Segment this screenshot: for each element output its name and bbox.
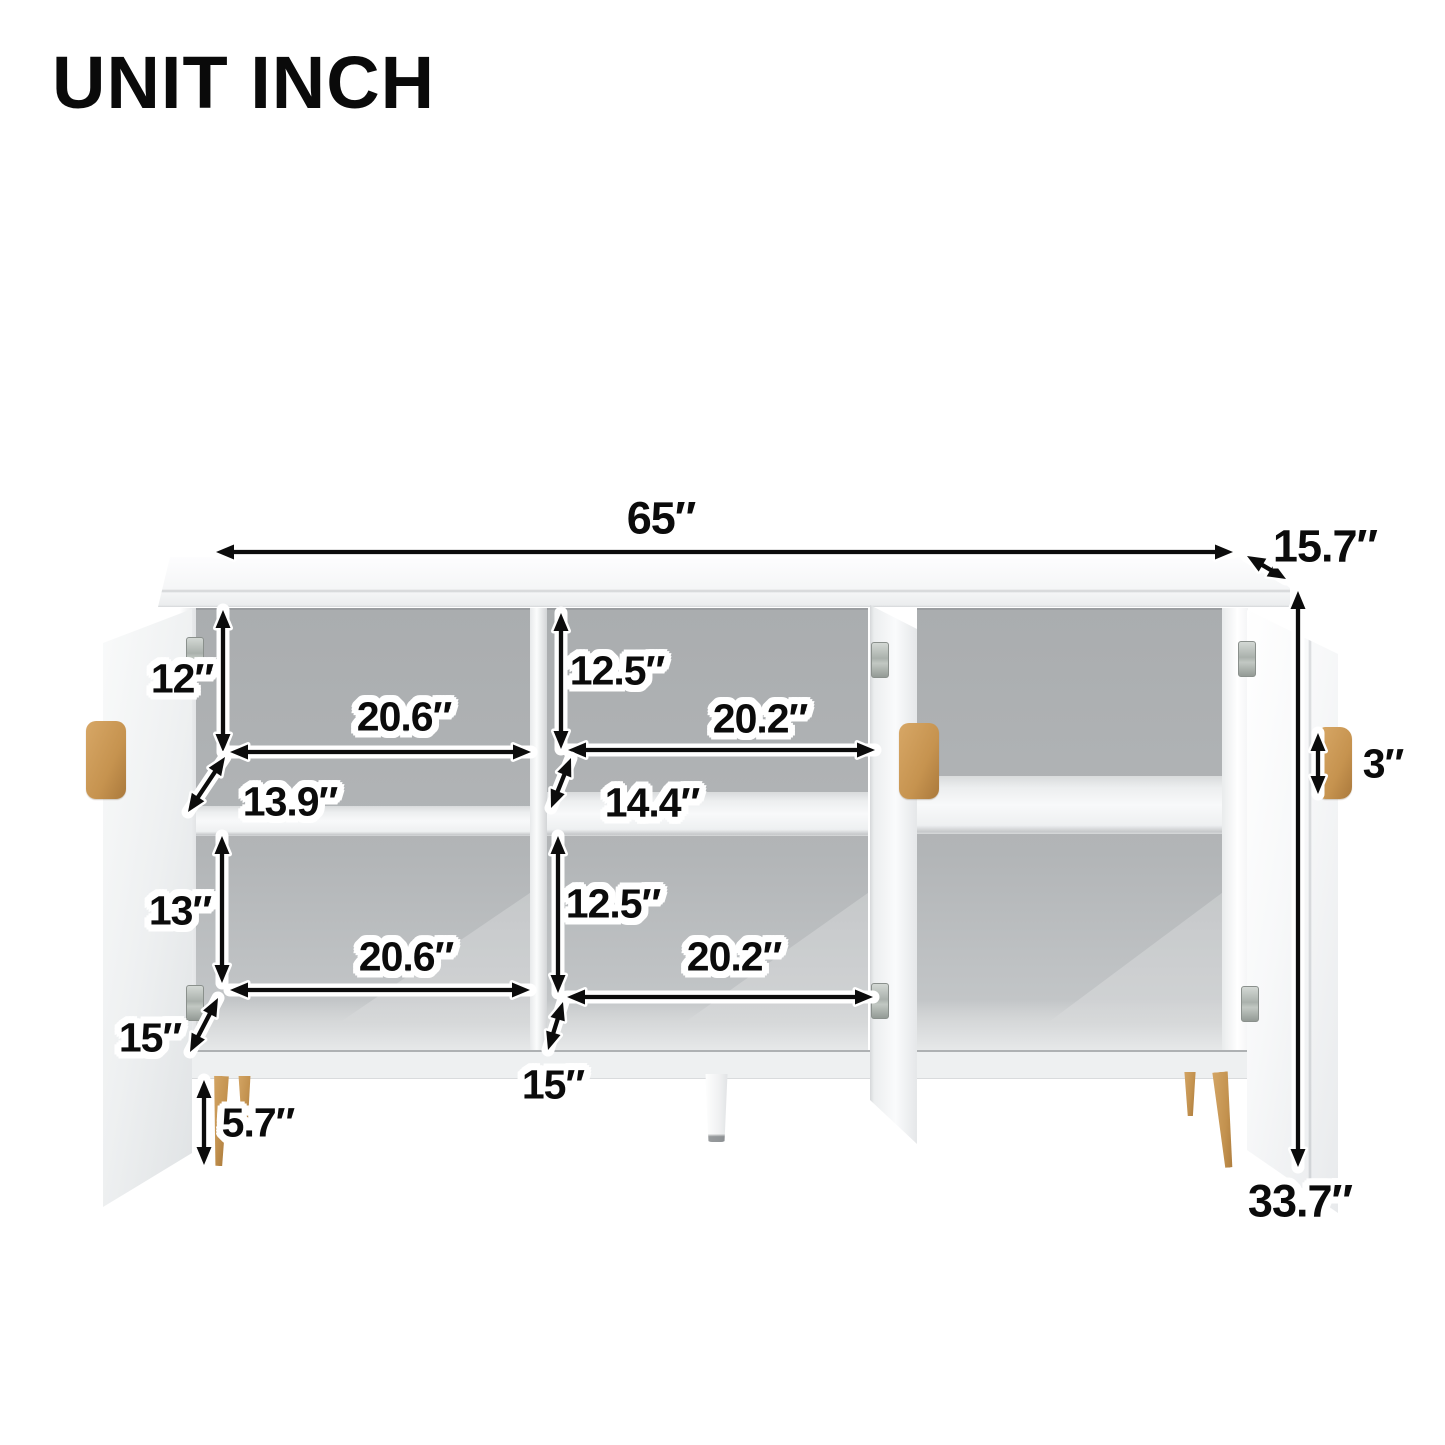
left-compartment-floor (196, 1000, 530, 1050)
hinge-icon (1238, 641, 1256, 677)
hinge-icon (186, 985, 204, 1021)
hinge-icon (871, 642, 889, 678)
middle-compartment-floor (546, 1000, 868, 1050)
right-compartment-floor (917, 1000, 1222, 1050)
hinge-icon (1241, 986, 1259, 1022)
center-divider-panel (530, 608, 547, 1050)
dim-label-overall-height: 33.7″ (1248, 1179, 1352, 1224)
right-door-open (1246, 609, 1339, 1215)
dim-label-left-bottom-height: 13″ (149, 891, 211, 932)
middle-shelf (546, 792, 868, 836)
product-dimension-diagram: UNIT INCH 65″ 15.7″ 33.7″ 3″ 12″ 20.6″ 1… (0, 0, 1445, 1445)
right-shelf (917, 776, 1222, 834)
left-door-handle (86, 721, 126, 799)
dim-label-middle-top-depth: 14.4″ (605, 783, 699, 824)
middle-door-open (868, 604, 918, 1149)
dim-label-left-top-depth: 13.9″ (243, 782, 337, 823)
dim-label-left-top-width: 20.6″ (357, 697, 451, 738)
dim-label-middle-top-height: 12.5″ (570, 651, 664, 692)
dim-label-middle-top-width: 20.2″ (713, 699, 807, 740)
dim-label-left-bottom-width: 20.6″ (359, 937, 453, 978)
front-right-leg (1209, 1071, 1239, 1169)
right-door-handle (1320, 727, 1352, 799)
dim-label-left-top-height: 12″ (151, 659, 213, 700)
dim-label-middle-bottom-width: 20.2″ (687, 937, 781, 978)
dim-label-left-bottom-depth: 15″ (119, 1018, 181, 1059)
hinge-icon (871, 983, 889, 1019)
middle-door-handle (899, 723, 939, 799)
page-title: UNIT INCH (52, 46, 435, 120)
dim-arrow-leg-height (197, 1080, 212, 1165)
cabinet-top-panel (156, 557, 1292, 607)
dim-label-middle-bottom-depth: 15″ (522, 1065, 584, 1106)
dim-label-middle-bottom-height: 12.5″ (566, 884, 660, 925)
dim-label-leg-height: 5.7″ (222, 1103, 295, 1144)
dim-label-handle-height: 3″ (1363, 744, 1403, 785)
dim-label-overall-width: 65″ (627, 496, 696, 541)
center-leg (704, 1074, 729, 1142)
dim-label-overall-depth: 15.7″ (1273, 524, 1377, 569)
